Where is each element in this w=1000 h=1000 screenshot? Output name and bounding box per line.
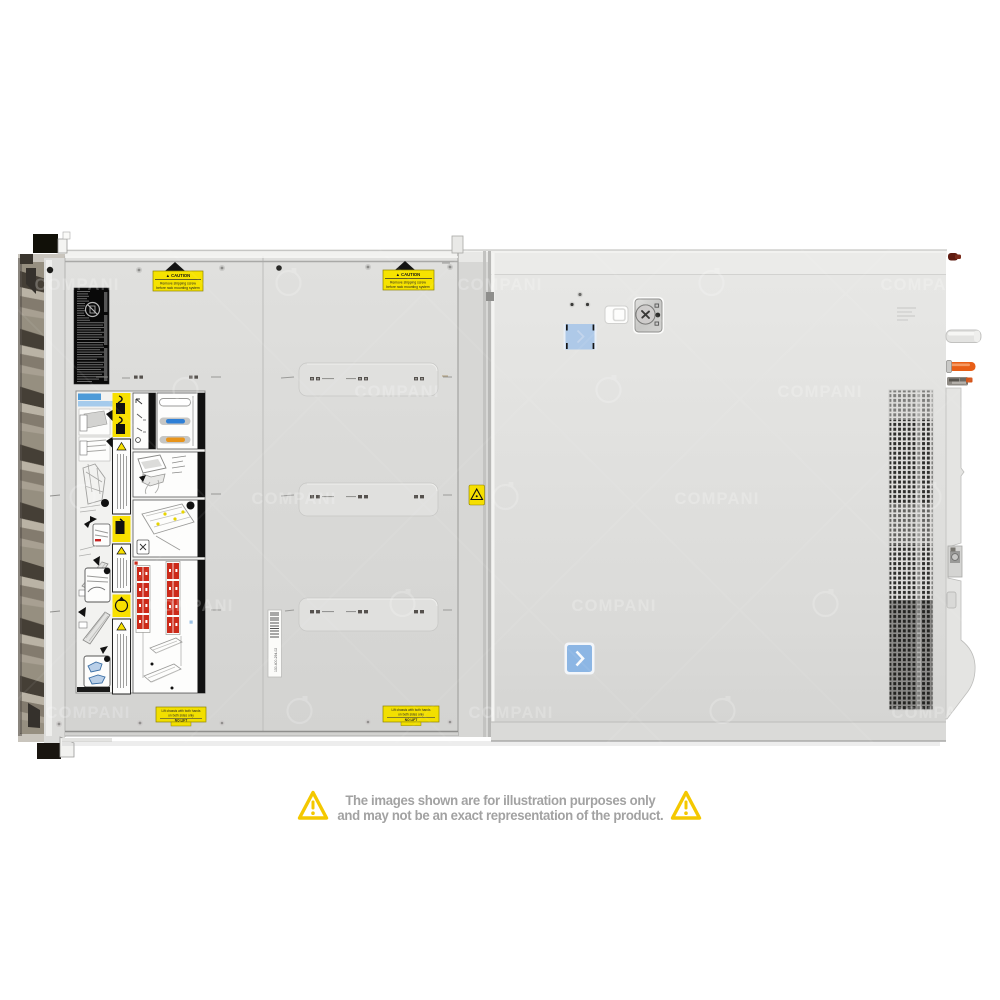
svg-text:▲ CAUTION: ▲ CAUTION [166, 273, 190, 278]
svg-text:COMPANI: COMPANI [880, 276, 965, 294]
svg-text:COMPANI: COMPANI [777, 383, 862, 401]
svg-text:COMPANI: COMPANI [571, 597, 656, 615]
svg-text:COMPANI: COMPANI [468, 704, 553, 722]
svg-text:COMPANI: COMPANI [34, 276, 119, 294]
svg-text:▲ CAUTION: ▲ CAUTION [396, 272, 420, 277]
svg-text:NO LIFT: NO LIFT [405, 718, 417, 722]
svg-text:COMPANI: COMPANI [148, 597, 233, 615]
svg-text:Lift chassis with both hands: Lift chassis with both hands [392, 708, 431, 712]
svg-text:COMPANI: COMPANI [251, 490, 336, 508]
svg-text:Remove shipping screw: Remove shipping screw [160, 281, 197, 285]
svg-text:COMPANI: COMPANI [45, 704, 130, 722]
svg-text:Lift chassis with both hands: Lift chassis with both hands [162, 709, 201, 713]
svg-text:on both sides only: on both sides only [168, 714, 194, 718]
svg-text:COMPANI: COMPANI [354, 383, 439, 401]
svg-text:before rack mounting system: before rack mounting system [386, 285, 430, 289]
svg-text:COMPANI: COMPANI [891, 704, 976, 722]
svg-text:COMPANI: COMPANI [457, 276, 542, 294]
svg-text:COMPANI: COMPANI [674, 490, 759, 508]
svg-text:Remove shipping screw: Remove shipping screw [390, 280, 427, 284]
svg-text:before rack mounting system: before rack mounting system [156, 286, 200, 290]
